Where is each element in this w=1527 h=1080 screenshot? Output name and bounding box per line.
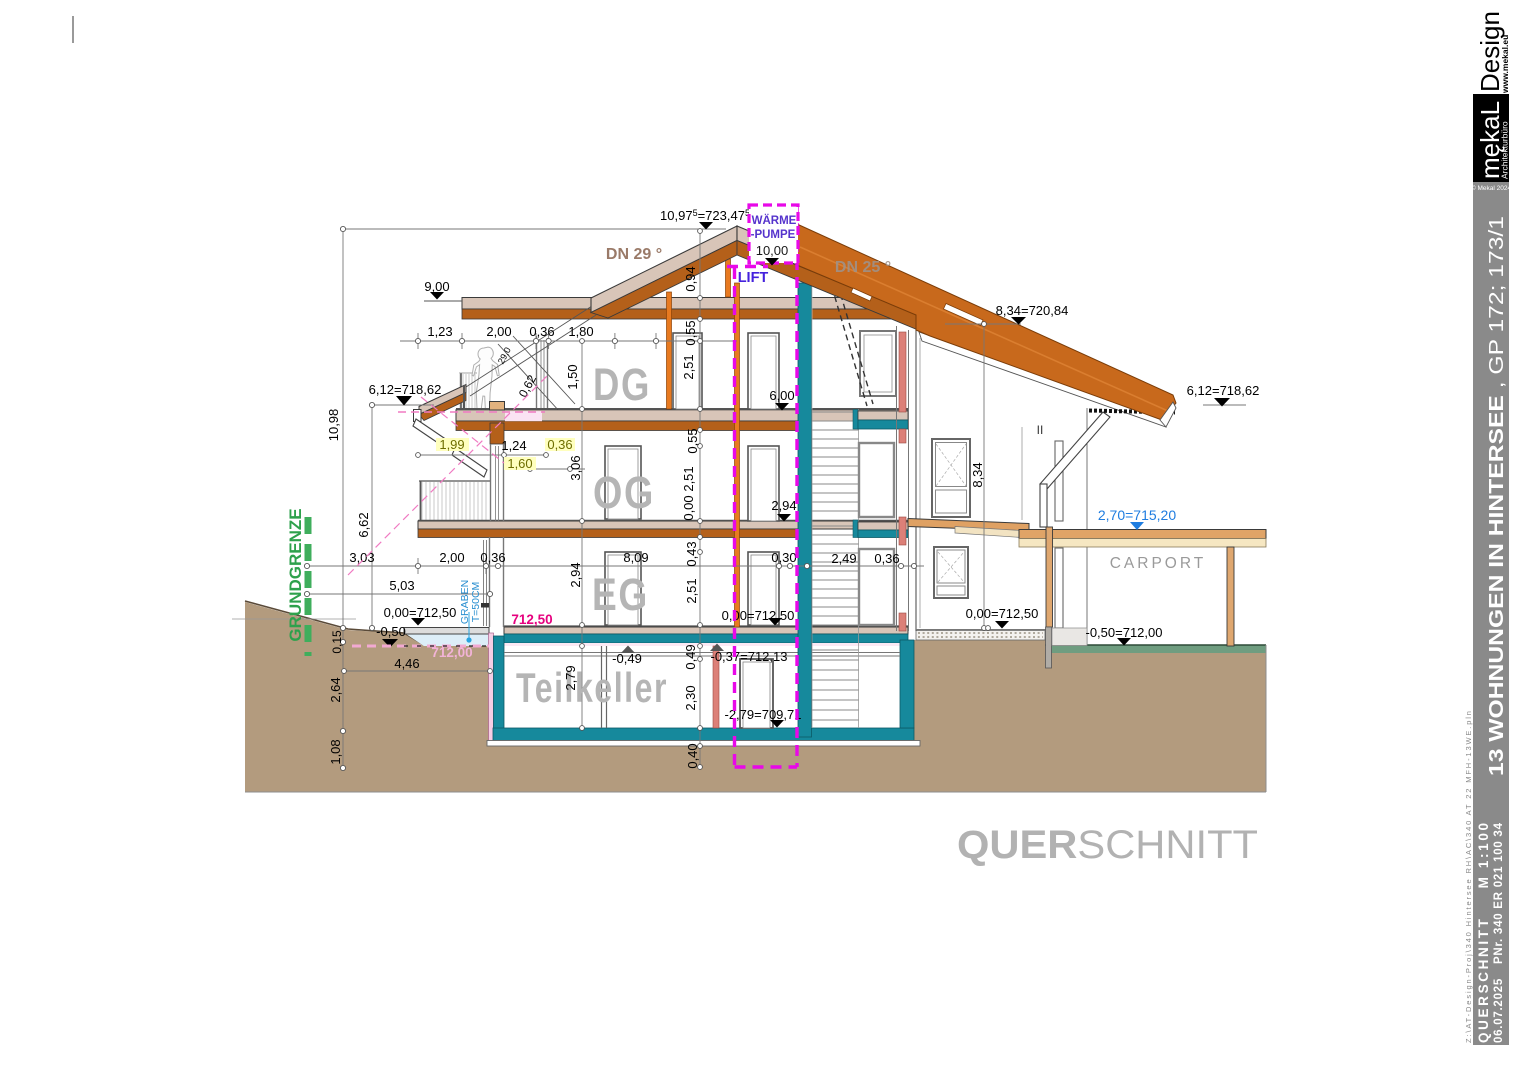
svg-text:Architekturbüro: Architekturbüro	[1500, 121, 1510, 179]
svg-text:QUERSCHNITTM 1:100: QUERSCHNITTM 1:100	[1476, 823, 1491, 1043]
svg-text:WÄRME: WÄRME	[752, 214, 797, 227]
svg-text:0,55: 0,55	[685, 428, 700, 453]
svg-text:CARPORT: CARPORT	[1110, 555, 1207, 572]
svg-text:OG: OG	[593, 467, 655, 518]
svg-text:GRUNDGRENZE: GRUNDGRENZE	[286, 508, 305, 641]
svg-text:-0,50=712,00: -0,50=712,00	[1086, 625, 1163, 640]
svg-text:DN 29 °: DN 29 °	[606, 246, 662, 263]
svg-text:5,03: 5,03	[389, 578, 414, 593]
svg-text:DN 25 °: DN 25 °	[835, 259, 891, 276]
svg-text:712,00: 712,00	[431, 645, 472, 660]
svg-text:T=50CM: T=50CM	[470, 582, 482, 623]
svg-text:2,30: 2,30	[683, 685, 698, 710]
svg-text:712,50: 712,50	[511, 612, 552, 627]
svg-text:8,09: 8,09	[623, 550, 648, 565]
svg-text:1,60: 1,60	[507, 456, 532, 471]
svg-text:3,06: 3,06	[568, 455, 583, 480]
svg-text:8,34: 8,34	[970, 462, 985, 487]
svg-text:0,94: 0,94	[683, 266, 698, 291]
svg-text:0,49: 0,49	[683, 644, 698, 669]
svg-text:2,94: 2,94	[771, 498, 796, 513]
svg-text:06.07.2025PNr. 340 ER 021 100: 06.07.2025PNr. 340 ER 021 100 34	[1493, 822, 1505, 1043]
svg-text:LIFT: LIFT	[738, 270, 769, 286]
svg-text:6,00: 6,00	[769, 388, 794, 403]
svg-text:-0,50: -0,50	[376, 624, 406, 639]
svg-text:0,36: 0,36	[480, 550, 505, 565]
svg-text:10,975=723,475: 10,975=723,475	[660, 208, 750, 223]
svg-text:6,12=718,62: 6,12=718,62	[1187, 383, 1260, 398]
svg-text:2,00: 2,00	[486, 324, 511, 339]
svg-text:-PUMPE: -PUMPE	[751, 229, 796, 241]
svg-text:0,43: 0,43	[684, 541, 699, 566]
svg-text:1,08: 1,08	[328, 739, 343, 764]
svg-text:0,30: 0,30	[771, 550, 796, 565]
svg-text:QUERSCHNITT: QUERSCHNITT	[957, 823, 1258, 867]
svg-text:-0,49: -0,49	[612, 651, 642, 666]
svg-text:0,36: 0,36	[874, 551, 899, 566]
svg-text:1,24: 1,24	[501, 438, 526, 453]
svg-text:© Mekal 2024: © Mekal 2024	[1471, 184, 1512, 192]
svg-text:0,40: 0,40	[685, 743, 700, 768]
svg-text:6,62: 6,62	[356, 512, 371, 537]
svg-text:0,36: 0,36	[529, 324, 554, 339]
svg-text:0,15: 0,15	[330, 630, 344, 654]
svg-text:EG: EG	[592, 569, 649, 620]
svg-text:2,51: 2,51	[681, 354, 696, 379]
svg-text:1,50: 1,50	[565, 364, 580, 389]
svg-text:2,94: 2,94	[568, 562, 583, 587]
svg-text:II: II	[1037, 423, 1044, 437]
svg-text:0,00=712,50: 0,00=712,50	[966, 606, 1039, 621]
svg-text:4,46: 4,46	[394, 656, 419, 671]
svg-text:2,64: 2,64	[328, 677, 343, 702]
svg-text:0,00=712,50: 0,00=712,50	[384, 605, 457, 620]
svg-text:Z:\AT-Design-Proj\340 Hinterse: Z:\AT-Design-Proj\340 Hintersee RH\AC\34…	[1464, 711, 1473, 1043]
svg-text:2,00: 2,00	[439, 550, 464, 565]
svg-text:2,51: 2,51	[681, 466, 696, 491]
svg-text:9,00: 9,00	[424, 279, 449, 294]
svg-text:2,49: 2,49	[831, 551, 856, 566]
svg-text:2,51: 2,51	[684, 578, 699, 603]
svg-text:2,70=715,20: 2,70=715,20	[1098, 507, 1176, 523]
svg-text:1,99: 1,99	[439, 437, 464, 452]
svg-text:Teilkeller: Teilkeller	[516, 664, 668, 711]
svg-text:0,00=712,50: 0,00=712,50	[722, 608, 795, 623]
svg-text:www.mekal.eu: www.mekal.eu	[1500, 35, 1510, 94]
svg-text:10,00: 10,00	[756, 243, 789, 258]
svg-text:-0,37=712,13: -0,37=712,13	[711, 649, 788, 664]
svg-text:2,79: 2,79	[563, 665, 578, 690]
svg-text:1,23: 1,23	[427, 324, 452, 339]
svg-text:8,34=720,84: 8,34=720,84	[996, 303, 1069, 318]
svg-text:6,12=718,62: 6,12=718,62	[369, 382, 442, 397]
svg-text:0,36: 0,36	[547, 437, 572, 452]
svg-text:10,98: 10,98	[326, 409, 341, 442]
svg-text:0,55: 0,55	[683, 320, 698, 345]
svg-text:13 WOHNUNGEN IN HINTERSEE , GP: 13 WOHNUNGEN IN HINTERSEE , GP 172; 173/…	[1486, 216, 1508, 776]
svg-text:0,00: 0,00	[681, 495, 696, 520]
svg-text:1,80: 1,80	[568, 324, 593, 339]
svg-text:DG: DG	[593, 359, 651, 410]
